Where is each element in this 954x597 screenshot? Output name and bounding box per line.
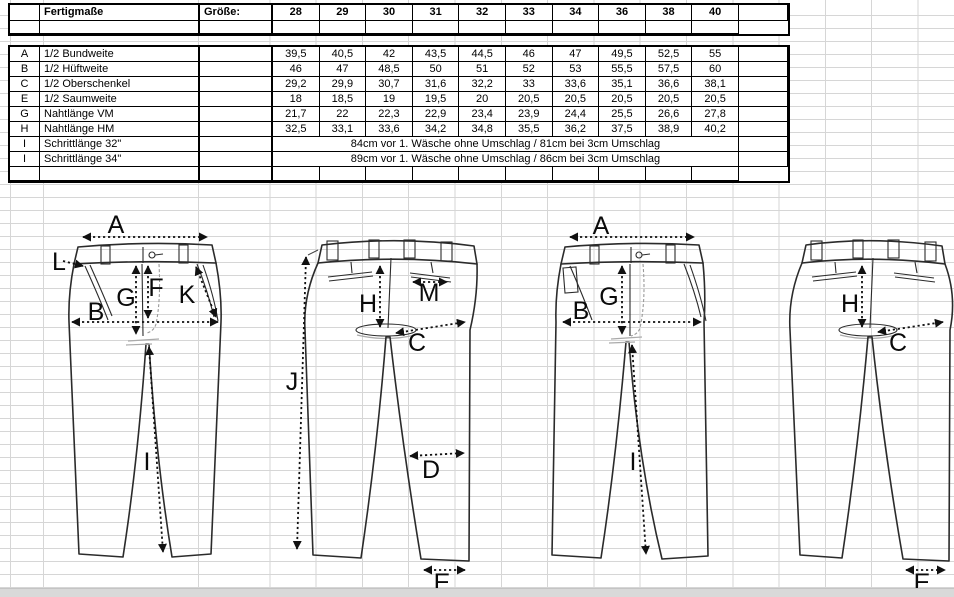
end-empty-cell[interactable] xyxy=(739,5,788,21)
bottom-scrollbar[interactable] xyxy=(0,588,954,597)
value-cell[interactable]: 49,5 xyxy=(599,47,646,62)
end-empty-cell[interactable] xyxy=(739,137,788,152)
empty-cell[interactable] xyxy=(320,167,367,181)
row-label-cell[interactable]: Nahtlänge HM xyxy=(40,122,200,137)
value-cell[interactable]: 20 xyxy=(459,92,506,107)
row-label-cell[interactable]: 1/2 Saumweite xyxy=(40,92,200,107)
end-empty-cell[interactable] xyxy=(739,122,788,137)
groesse-empty-cell[interactable] xyxy=(200,62,273,77)
row-key-cell[interactable]: I xyxy=(10,137,40,152)
value-cell[interactable]: 32,2 xyxy=(459,77,506,92)
value-cell[interactable]: 55,5 xyxy=(599,62,646,77)
span-text-cell[interactable]: 89cm vor 1. Wäsche ohne Umschlag / 86cm … xyxy=(273,152,739,167)
value-cell[interactable]: 37,5 xyxy=(599,122,646,137)
value-cell[interactable]: 50 xyxy=(413,62,460,77)
empty-cell[interactable] xyxy=(40,167,200,181)
value-cell[interactable]: 34,8 xyxy=(459,122,506,137)
size-col-header[interactable]: 40 xyxy=(692,5,739,21)
row-key-cell[interactable]: H xyxy=(10,122,40,137)
row-label-cell[interactable]: Nahtlänge VM xyxy=(40,107,200,122)
empty-cell[interactable] xyxy=(366,21,413,34)
value-cell[interactable]: 32,5 xyxy=(273,122,320,137)
value-cell[interactable]: 20,5 xyxy=(506,92,553,107)
empty-cell[interactable] xyxy=(599,167,646,181)
empty-cell[interactable] xyxy=(646,167,693,181)
value-cell[interactable]: 23,4 xyxy=(459,107,506,122)
size-col-header[interactable]: 31 xyxy=(413,5,460,21)
value-cell[interactable]: 43,5 xyxy=(413,47,460,62)
size-col-header[interactable]: 33 xyxy=(506,5,553,21)
groesse-empty-cell[interactable] xyxy=(200,92,273,107)
empty-cell[interactable] xyxy=(366,167,413,181)
value-cell[interactable]: 48,5 xyxy=(366,62,413,77)
value-cell[interactable]: 19 xyxy=(366,92,413,107)
value-cell[interactable]: 35,5 xyxy=(506,122,553,137)
value-cell[interactable]: 53 xyxy=(553,62,600,77)
row-key-cell[interactable]: G xyxy=(10,107,40,122)
groesse-empty-cell[interactable] xyxy=(200,152,273,167)
end-empty-cell[interactable] xyxy=(739,92,788,107)
value-cell[interactable]: 22,9 xyxy=(413,107,460,122)
empty-cell[interactable] xyxy=(459,21,506,34)
value-cell[interactable]: 29,9 xyxy=(320,77,367,92)
empty-cell[interactable] xyxy=(273,167,320,181)
value-cell[interactable]: 33,6 xyxy=(553,77,600,92)
row-key-cell[interactable]: E xyxy=(10,92,40,107)
size-table-data: A1/2 Bundweite39,540,54243,544,5464749,5… xyxy=(8,45,790,183)
row-key-cell[interactable]: I xyxy=(10,152,40,167)
empty-cell[interactable] xyxy=(553,21,600,34)
value-cell[interactable]: 46 xyxy=(273,62,320,77)
empty-cell[interactable] xyxy=(646,21,693,34)
corner-cell[interactable] xyxy=(10,5,40,21)
size-table-header: Fertigmaße Größe: 28 29 30 31 32 33 34 3… xyxy=(8,3,790,36)
empty-cell[interactable] xyxy=(413,21,460,34)
value-cell[interactable]: 38,9 xyxy=(646,122,693,137)
value-cell[interactable]: 26,6 xyxy=(646,107,693,122)
value-cell[interactable]: 30,7 xyxy=(366,77,413,92)
empty-cell[interactable] xyxy=(413,167,460,181)
value-cell[interactable]: 44,5 xyxy=(459,47,506,62)
value-cell[interactable]: 29,2 xyxy=(273,77,320,92)
value-cell[interactable]: 35,1 xyxy=(599,77,646,92)
value-cell[interactable]: 33,1 xyxy=(320,122,367,137)
spreadsheet-page: Fertigmaße Größe: 28 29 30 31 32 33 34 3… xyxy=(0,0,954,597)
table-title-cell[interactable]: Fertigmaße xyxy=(40,5,200,21)
value-cell[interactable]: 23,9 xyxy=(506,107,553,122)
value-cell[interactable]: 40,5 xyxy=(320,47,367,62)
empty-cell[interactable] xyxy=(459,167,506,181)
value-cell[interactable]: 34,2 xyxy=(413,122,460,137)
value-cell[interactable]: 52 xyxy=(506,62,553,77)
empty-cell[interactable] xyxy=(506,167,553,181)
groesse-empty-cell[interactable] xyxy=(200,77,273,92)
groesse-empty-cell[interactable] xyxy=(200,107,273,122)
value-cell[interactable]: 36,6 xyxy=(646,77,693,92)
value-cell[interactable]: 55 xyxy=(692,47,739,62)
value-cell[interactable]: 24,4 xyxy=(553,107,600,122)
empty-cell[interactable] xyxy=(10,167,40,181)
empty-cell[interactable] xyxy=(599,21,646,34)
end-empty-cell[interactable] xyxy=(739,152,788,167)
empty-cell[interactable] xyxy=(692,21,739,34)
value-cell[interactable]: 22,3 xyxy=(366,107,413,122)
size-col-header[interactable]: 38 xyxy=(646,5,693,21)
size-col-header[interactable]: 29 xyxy=(320,5,367,21)
size-col-header[interactable]: 34 xyxy=(553,5,600,21)
end-empty-cell[interactable] xyxy=(739,47,788,62)
empty-cell[interactable] xyxy=(692,167,739,181)
row-key-cell[interactable]: B xyxy=(10,62,40,77)
value-cell[interactable]: 51 xyxy=(459,62,506,77)
row-key-cell[interactable]: C xyxy=(10,77,40,92)
value-cell[interactable]: 27,8 xyxy=(692,107,739,122)
value-cell[interactable]: 18 xyxy=(273,92,320,107)
value-cell[interactable]: 38,1 xyxy=(692,77,739,92)
value-cell[interactable]: 20,5 xyxy=(553,92,600,107)
value-cell[interactable]: 47 xyxy=(553,47,600,62)
end-empty-cell[interactable] xyxy=(739,62,788,77)
value-cell[interactable]: 18,5 xyxy=(320,92,367,107)
groesse-empty-cell[interactable] xyxy=(200,137,273,152)
row-label-cell[interactable]: 1/2 Oberschenkel xyxy=(40,77,200,92)
size-col-header[interactable]: 32 xyxy=(459,5,506,21)
empty-cell[interactable] xyxy=(320,21,367,34)
value-cell[interactable]: 39,5 xyxy=(273,47,320,62)
value-cell[interactable]: 33,6 xyxy=(366,122,413,137)
empty-cell[interactable] xyxy=(273,21,320,34)
groesse-empty-cell[interactable] xyxy=(200,47,273,62)
empty-cell[interactable] xyxy=(553,167,600,181)
empty-cell[interactable] xyxy=(200,21,273,34)
size-col-header[interactable]: 30 xyxy=(366,5,413,21)
value-cell[interactable]: 33 xyxy=(506,77,553,92)
value-cell[interactable]: 20,5 xyxy=(692,92,739,107)
empty-cell[interactable] xyxy=(40,21,200,34)
value-cell[interactable]: 22 xyxy=(320,107,367,122)
value-cell[interactable]: 52,5 xyxy=(646,47,693,62)
value-cell[interactable]: 19,5 xyxy=(413,92,460,107)
value-cell[interactable]: 21,7 xyxy=(273,107,320,122)
value-cell[interactable]: 31,6 xyxy=(413,77,460,92)
value-cell[interactable]: 60 xyxy=(692,62,739,77)
empty-cell[interactable] xyxy=(200,167,273,181)
value-cell[interactable]: 40,2 xyxy=(692,122,739,137)
value-cell[interactable]: 36,2 xyxy=(553,122,600,137)
row-label-cell[interactable]: 1/2 Bundweite xyxy=(40,47,200,62)
empty-cell[interactable] xyxy=(10,21,40,34)
value-cell[interactable]: 25,5 xyxy=(599,107,646,122)
empty-cell[interactable] xyxy=(506,21,553,34)
row-label-cell[interactable]: 1/2 Hüftweite xyxy=(40,62,200,77)
size-label-cell[interactable]: Größe: xyxy=(200,5,273,21)
size-col-header[interactable]: 28 xyxy=(273,5,320,21)
row-label-cell[interactable]: Schrittlänge 34" xyxy=(40,152,200,167)
value-cell[interactable]: 46 xyxy=(506,47,553,62)
groesse-empty-cell[interactable] xyxy=(200,122,273,137)
value-cell[interactable]: 57,5 xyxy=(646,62,693,77)
value-cell[interactable]: 20,5 xyxy=(599,92,646,107)
size-col-header[interactable]: 36 xyxy=(599,5,646,21)
end-empty-cell[interactable] xyxy=(739,77,788,92)
value-cell[interactable]: 47 xyxy=(320,62,367,77)
row-label-cell[interactable]: Schrittlänge 32" xyxy=(40,137,200,152)
value-cell[interactable]: 42 xyxy=(366,47,413,62)
end-empty-cell[interactable] xyxy=(739,107,788,122)
value-cell[interactable]: 20,5 xyxy=(646,92,693,107)
row-key-cell[interactable]: A xyxy=(10,47,40,62)
span-text-cell[interactable]: 84cm vor 1. Wäsche ohne Umschlag / 81cm … xyxy=(273,137,739,152)
